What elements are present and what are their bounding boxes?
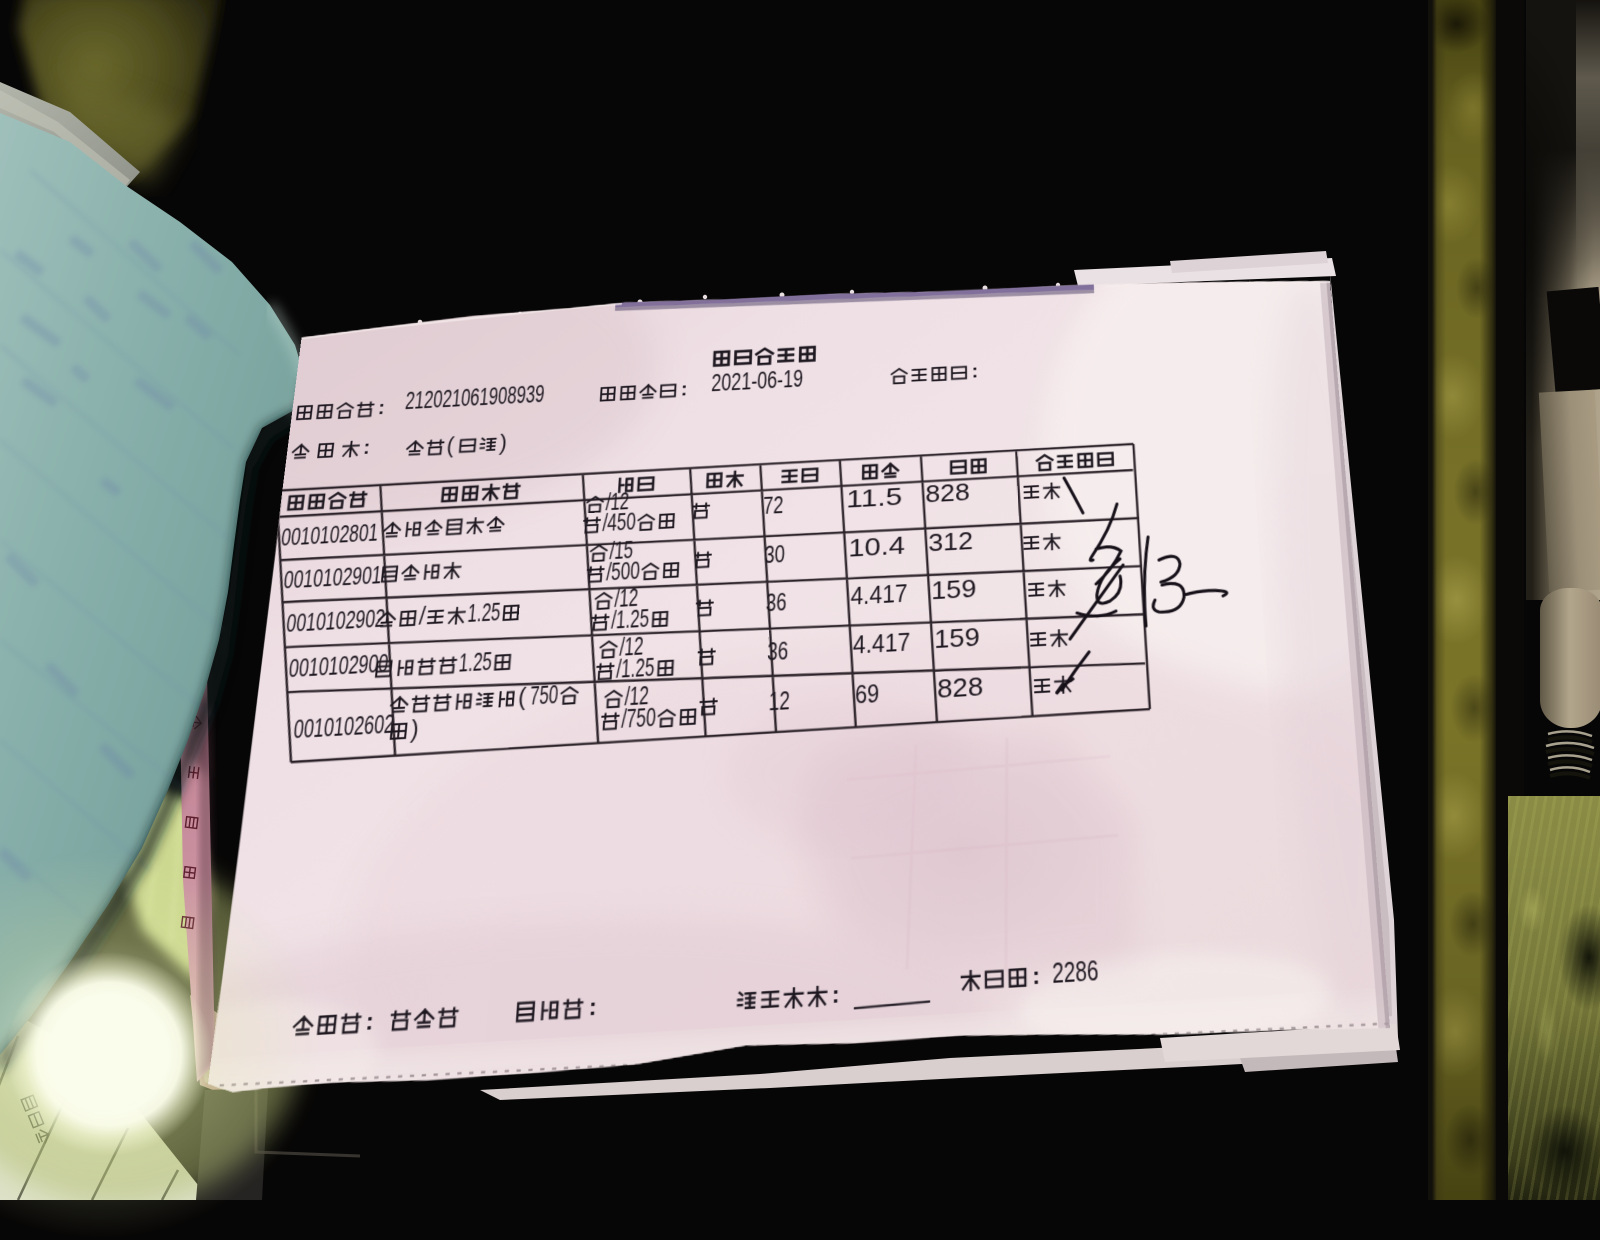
svg-text:159: 159: [931, 574, 976, 605]
svg-text:/1.25: /1.25: [611, 604, 650, 635]
svg-text:/500: /500: [606, 556, 641, 586]
svg-text:0010102602: 0010102602: [292, 708, 396, 743]
svg-text:0010102900: 0010102900: [287, 648, 390, 683]
svg-text:2021-06-19: 2021-06-19: [711, 366, 804, 398]
svg-text:2286: 2286: [1052, 954, 1099, 989]
svg-text:750: 750: [529, 679, 559, 710]
svg-text::: :: [1032, 962, 1040, 990]
svg-text::: :: [832, 981, 840, 1009]
svg-text:10.4: 10.4: [848, 531, 905, 562]
svg-text:72: 72: [763, 491, 784, 519]
svg-text:30: 30: [764, 539, 785, 568]
svg-text:159: 159: [934, 622, 980, 653]
svg-text:/1.25: /1.25: [616, 652, 656, 683]
svg-text::: :: [588, 993, 597, 1021]
svg-text:69: 69: [855, 678, 879, 709]
svg-text:0010102901: 0010102901: [282, 560, 383, 593]
svg-text:0010102902: 0010102902: [285, 603, 387, 637]
svg-text:/450: /450: [602, 507, 637, 536]
svg-text::: :: [680, 378, 688, 399]
svg-text:11.5: 11.5: [846, 482, 902, 512]
svg-text:4.417: 4.417: [850, 578, 907, 609]
svg-text:0010102801: 0010102801: [280, 518, 380, 551]
svg-text:1.25: 1.25: [458, 646, 494, 677]
svg-text:36: 36: [767, 636, 789, 666]
svg-text::: :: [972, 360, 979, 381]
svg-text:36: 36: [765, 587, 787, 616]
svg-text:828: 828: [937, 671, 983, 703]
svg-text:828: 828: [925, 478, 969, 508]
svg-text:4.417: 4.417: [853, 627, 911, 659]
svg-text:312: 312: [928, 526, 973, 556]
svg-text:12: 12: [768, 685, 790, 716]
svg-text:/750: /750: [621, 702, 657, 734]
svg-text:1.25: 1.25: [467, 597, 502, 627]
